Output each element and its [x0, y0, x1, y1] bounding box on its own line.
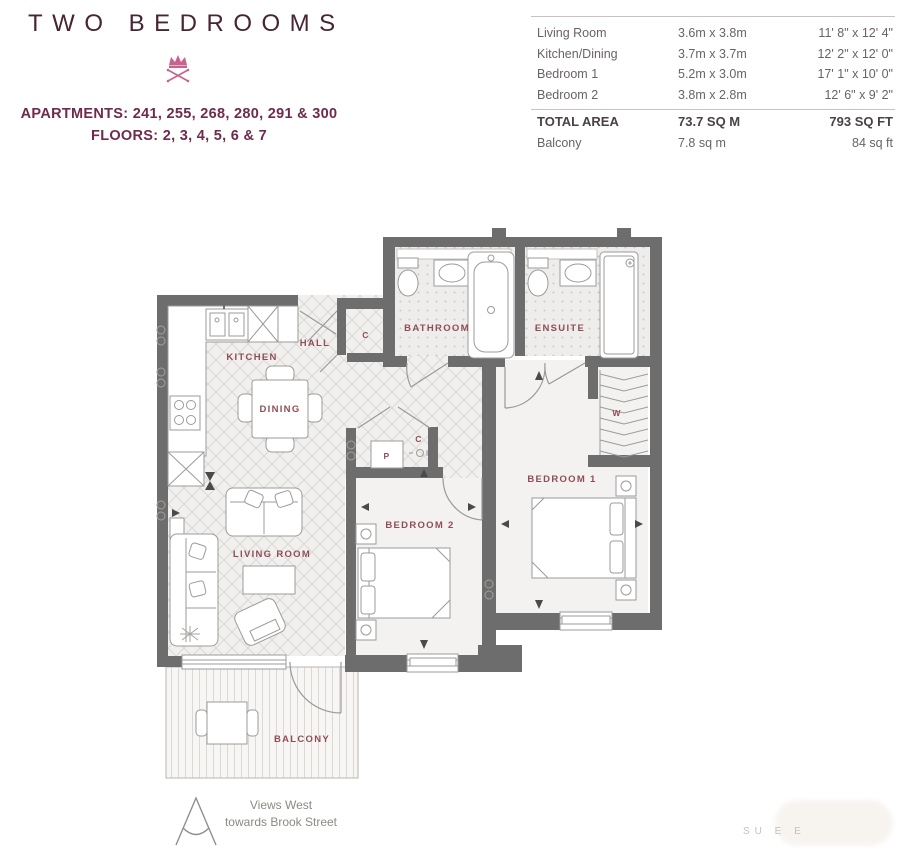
sofa: [226, 488, 302, 536]
toilet: [398, 258, 418, 296]
bathtub: [468, 252, 514, 358]
pantry-label: P: [384, 451, 391, 461]
wardrobe-label: W: [612, 408, 621, 418]
floorplan-svg: KITCHEN HALL DINING LIVING ROOM BEDROOM …: [0, 0, 903, 853]
balcony-label: BALCONY: [274, 734, 330, 745]
bedroom1-label: BEDROOM 1: [527, 474, 596, 485]
nightstand: [616, 476, 636, 496]
kitchen-cupboard: [248, 306, 278, 342]
pillow: [610, 541, 623, 573]
radiator: [562, 616, 610, 624]
kitchen-sink: [206, 304, 248, 340]
watermark: SU E E: [733, 800, 893, 850]
pillow: [610, 503, 623, 535]
living-room-label: LIVING ROOM: [233, 549, 311, 560]
pillow: [361, 586, 375, 614]
bathroom-label: BATHROOM: [404, 323, 470, 334]
plant: [180, 626, 200, 642]
watermark-logo: [775, 800, 893, 846]
balcony-chair: [196, 710, 207, 736]
pillow: [361, 553, 375, 581]
balcony-chair: [247, 710, 258, 736]
view-direction-note: Views West towards Brook Street: [195, 797, 367, 831]
view-note-line2: towards Brook Street: [195, 814, 367, 831]
kitchen-unit: [168, 452, 204, 486]
ensuite-label: ENSUITE: [535, 323, 585, 334]
bed: [358, 548, 450, 618]
nightstand: [356, 620, 376, 640]
nightstand: [616, 580, 636, 600]
balcony-table: [207, 702, 247, 744]
living-room-window: [182, 655, 286, 669]
view-note-line1: Views West: [195, 797, 367, 814]
radiator: [410, 658, 456, 666]
balcony-floor: [166, 667, 358, 778]
dining-label: DINING: [259, 404, 300, 415]
coffee-table: [243, 566, 295, 594]
basin: [434, 260, 470, 286]
watermark-text: SU E E: [743, 826, 806, 837]
cupboard-label: C: [362, 330, 369, 340]
nightstand: [356, 524, 376, 544]
floorplan-page: TWO BEDROOMS APARTMENTS: 241, 255, 268, …: [0, 0, 903, 853]
cupboard-label: C: [415, 434, 422, 444]
basin: [560, 260, 596, 286]
bedroom2-label: BEDROOM 2: [385, 520, 454, 531]
hob: [170, 396, 200, 430]
hall-label: HALL: [300, 338, 331, 349]
sofa: [170, 534, 218, 646]
toilet: [528, 258, 548, 296]
bed: [532, 498, 636, 578]
shower: [600, 252, 638, 358]
kitchen-label: KITCHEN: [226, 352, 277, 363]
